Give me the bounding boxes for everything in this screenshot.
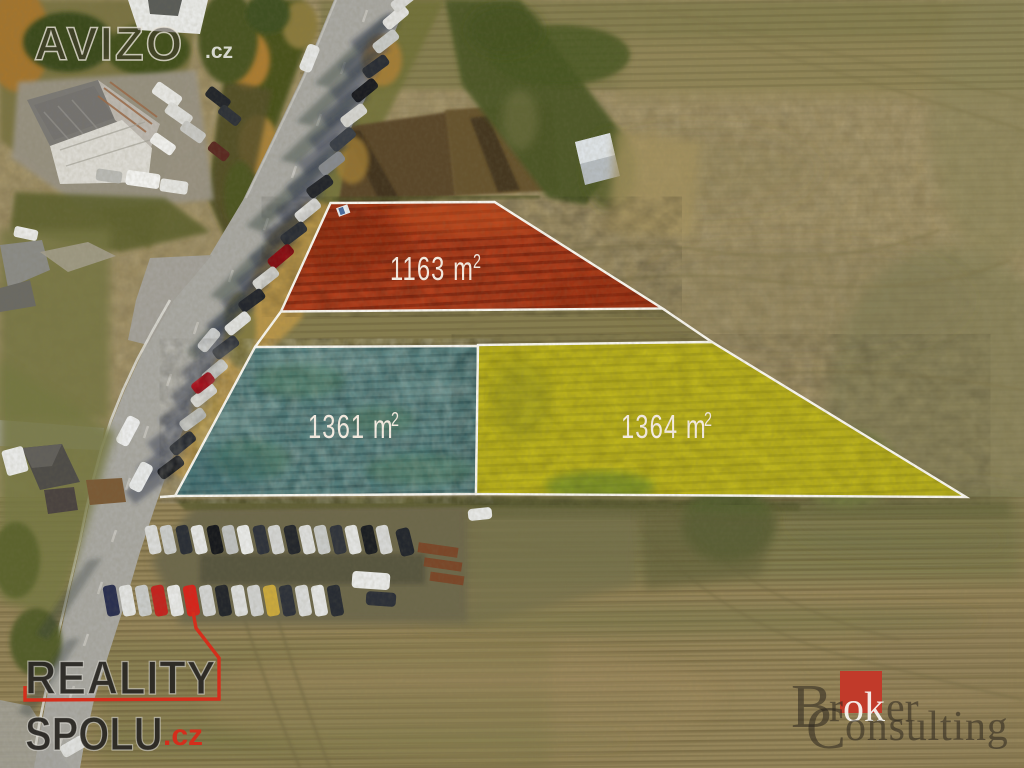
- svg-text:AVIZO: AVIZO: [34, 17, 184, 70]
- svg-text:onsulting: onsulting: [845, 704, 1009, 750]
- svg-text:REALITY: REALITY: [25, 651, 216, 704]
- svg-text:.cz: .cz: [163, 719, 203, 752]
- svg-text:SPOLU: SPOLU: [25, 709, 163, 761]
- svg-text:C: C: [806, 695, 846, 761]
- svg-text:.cz: .cz: [205, 40, 233, 63]
